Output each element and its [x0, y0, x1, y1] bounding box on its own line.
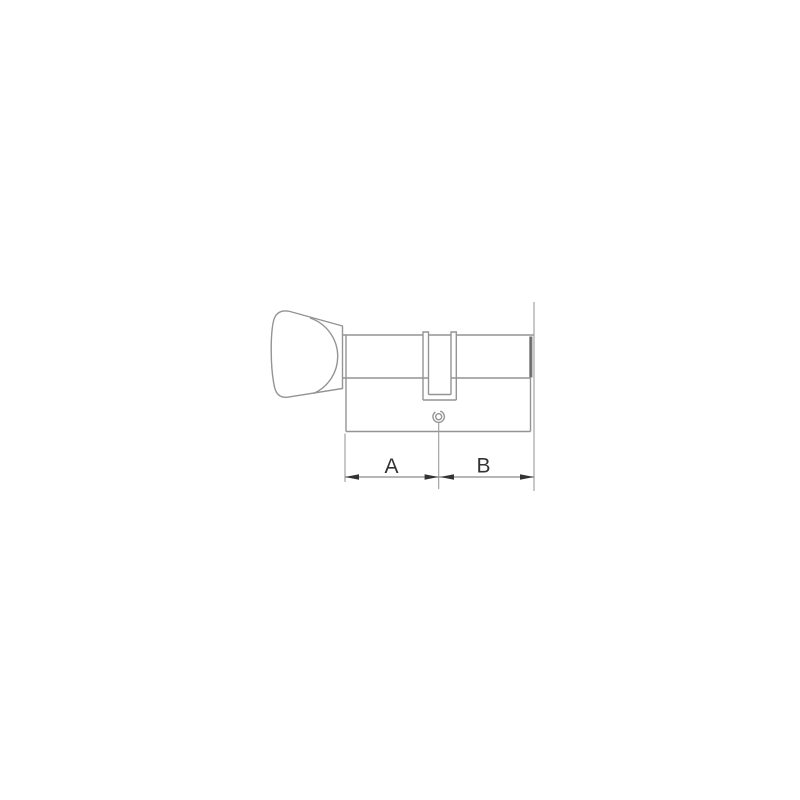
barrel-end-shading — [529, 337, 533, 378]
dimension-line — [345, 474, 534, 479]
screw-hole — [433, 411, 444, 422]
arrowhead-center-left — [440, 474, 454, 479]
arrowhead-left — [345, 474, 359, 479]
cylinder-lock-diagram: A B — [0, 0, 800, 800]
technical-drawing-canvas: A B — [0, 0, 800, 800]
cam-slot — [423, 332, 456, 400]
thumbturn-knob — [271, 311, 342, 397]
arrowhead-center-right — [425, 474, 439, 479]
dimension-label-a: A — [384, 455, 398, 478]
dimension-label-b: B — [476, 455, 490, 478]
cylinder-barrel — [343, 335, 535, 432]
arrowhead-right — [520, 474, 534, 479]
knob-face-curve — [310, 318, 338, 394]
